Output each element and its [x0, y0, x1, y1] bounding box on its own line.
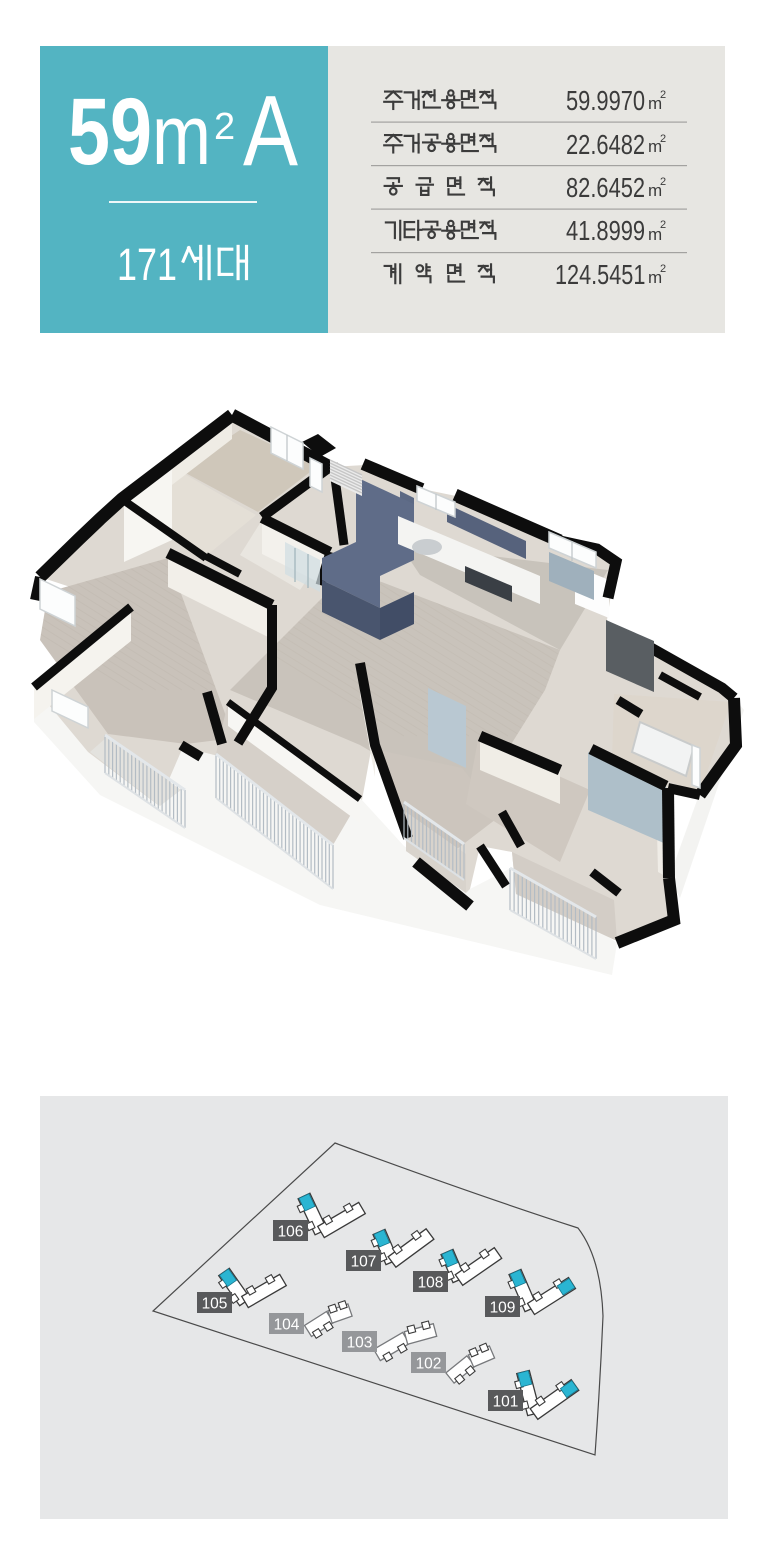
svg-text:m: m — [152, 88, 211, 182]
svg-text:108: 108 — [418, 1275, 444, 1292]
svg-text:106: 106 — [278, 1224, 304, 1241]
svg-text:102: 102 — [416, 1356, 442, 1373]
svg-text:2: 2 — [660, 263, 666, 275]
svg-text:103: 103 — [347, 1335, 373, 1352]
svg-text:104: 104 — [274, 1317, 300, 1334]
svg-text:105: 105 — [202, 1296, 228, 1313]
svg-text:171: 171 — [117, 239, 177, 290]
svg-text:2: 2 — [660, 176, 666, 188]
svg-text:22.6482: 22.6482 — [566, 129, 645, 160]
svg-text:2: 2 — [214, 106, 235, 148]
svg-text:2: 2 — [660, 219, 666, 231]
svg-text:2: 2 — [660, 89, 666, 101]
svg-text:107: 107 — [351, 1254, 377, 1271]
svg-text:82.6452: 82.6452 — [566, 172, 645, 203]
svg-text:109: 109 — [490, 1300, 516, 1317]
svg-text:124.5451: 124.5451 — [555, 259, 645, 290]
svg-text:59: 59 — [68, 79, 152, 185]
svg-text:A: A — [243, 75, 298, 187]
svg-text:2: 2 — [660, 133, 666, 145]
svg-text:101: 101 — [493, 1394, 519, 1411]
svg-text:59.9970: 59.9970 — [566, 85, 645, 116]
svg-text:41.8999: 41.8999 — [566, 215, 645, 246]
